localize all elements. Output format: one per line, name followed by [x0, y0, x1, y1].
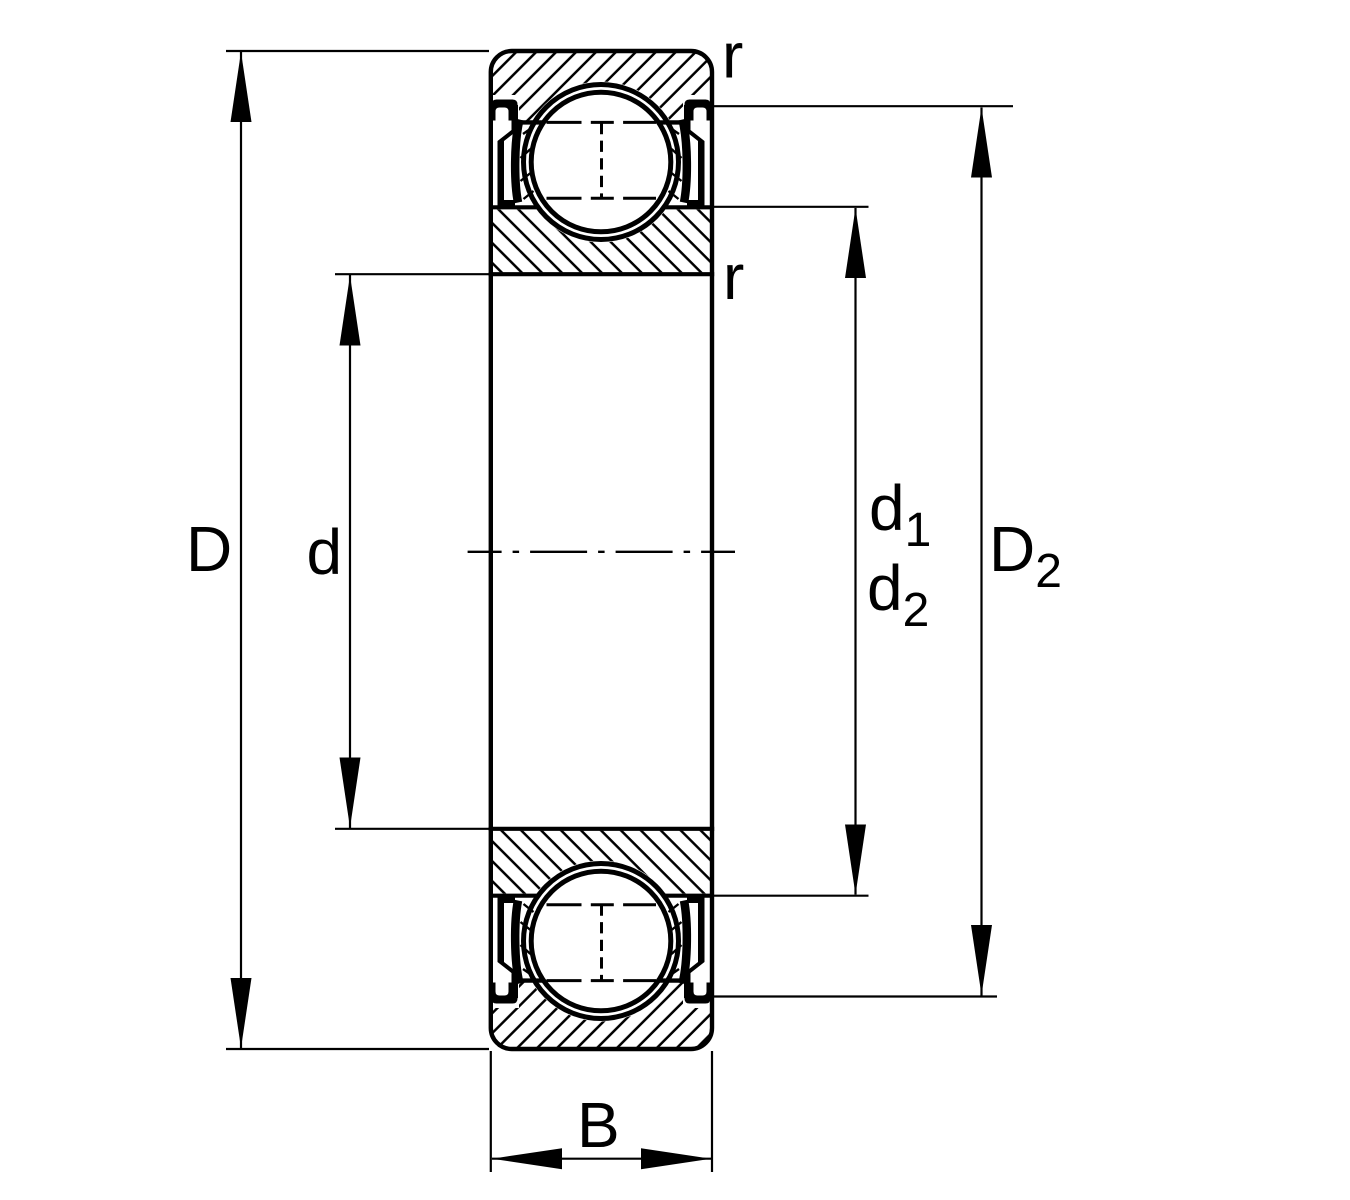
svg-text:r: r [722, 20, 743, 92]
svg-text:d: d [307, 516, 343, 588]
svg-text:D: D [186, 513, 232, 585]
svg-text:r: r [723, 241, 744, 313]
svg-text:B: B [577, 1089, 620, 1161]
